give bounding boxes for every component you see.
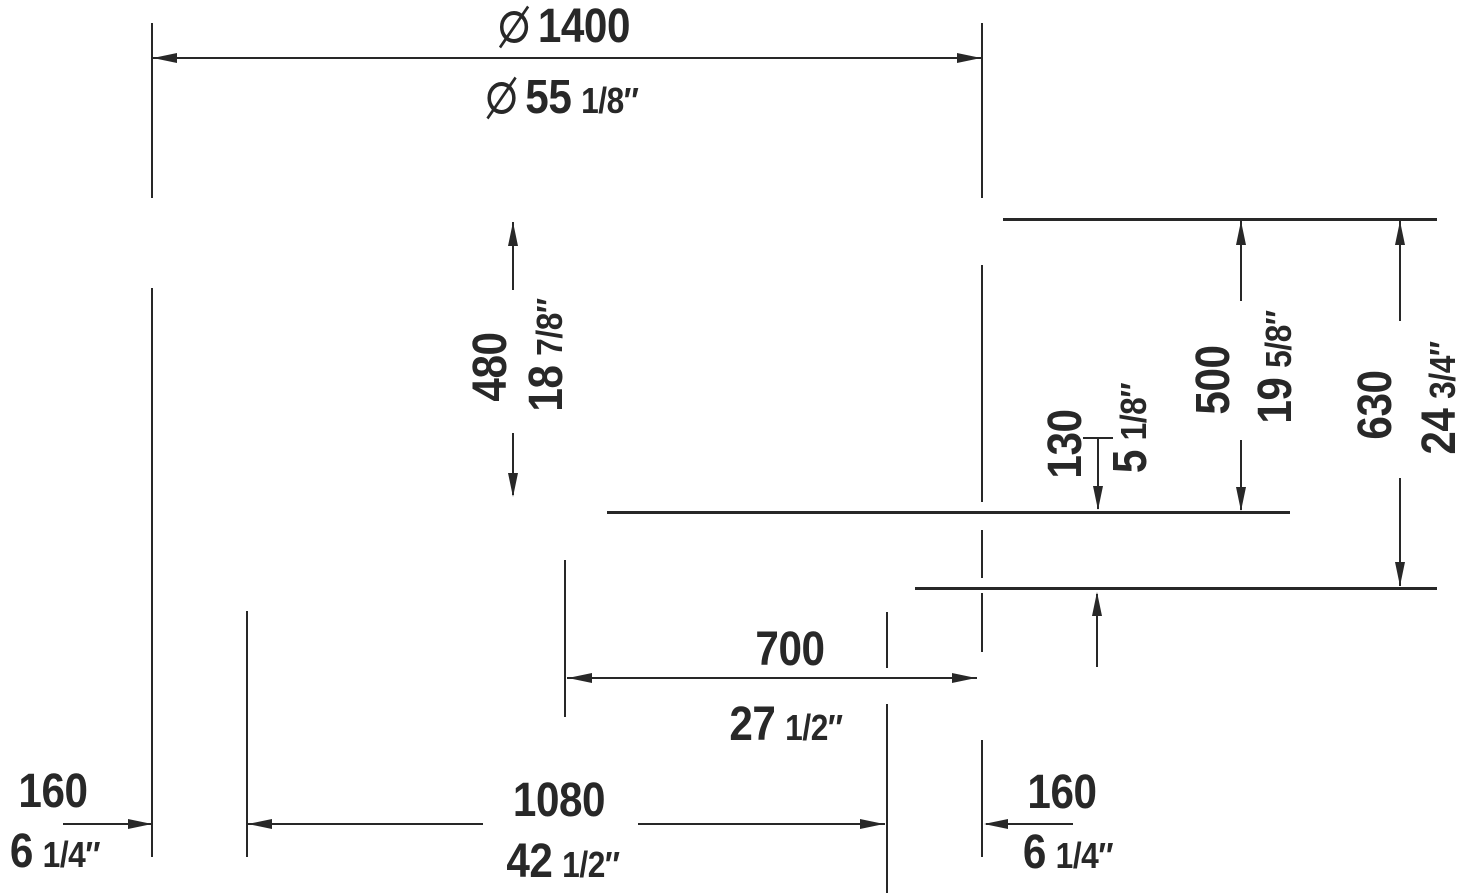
dim-fraction: 3/4″ — [1425, 341, 1461, 398]
dim-fraction: 1/8″ — [1116, 383, 1152, 440]
dim-line-foot-span-right — [638, 823, 885, 825]
dim-rim-metric: 500 — [1190, 345, 1238, 414]
dim-fraction: 1/4″ — [43, 837, 100, 873]
arrowhead-right — [957, 53, 981, 63]
arrowhead-left — [153, 53, 177, 63]
right-foot-line-upper — [886, 612, 888, 668]
arrowhead-down — [1236, 487, 1246, 511]
dim-foot-span-metric: 1080 — [513, 777, 605, 825]
dim-center-to-edge-imperial: 27 1/2″ — [729, 701, 842, 749]
diameter-icon — [500, 11, 528, 43]
diameter-icon — [487, 82, 515, 114]
arrowhead-left — [248, 819, 272, 829]
dim-line-diameter — [152, 57, 982, 59]
dim-clearance-metric: 130 — [1042, 409, 1090, 478]
arrowhead-up — [1236, 221, 1246, 245]
rim-level-line — [1003, 218, 1437, 221]
extension-line-right-2 — [981, 265, 983, 502]
arrowhead-down — [1093, 486, 1103, 510]
dim-fraction: 5/8″ — [1261, 310, 1297, 367]
dim-value: 42 — [506, 838, 552, 886]
dim-value: 130 — [1042, 409, 1090, 478]
dim-value: 160 — [1027, 769, 1096, 817]
dim-value: 5 — [1107, 450, 1155, 473]
dim-fraction: 1/8″ — [581, 83, 638, 119]
dim-line-foot-span-left — [247, 823, 483, 825]
dim-fraction: 1/4″ — [1056, 838, 1113, 874]
arrowhead-right — [860, 819, 884, 829]
dim-line-center-to-edge — [567, 677, 977, 679]
dim-value: 18 — [523, 366, 571, 412]
arrowhead-right — [952, 673, 976, 683]
dim-foot-span-imperial: 42 1/2″ — [506, 838, 619, 886]
dim-fraction: 1/2″ — [785, 710, 842, 746]
arrowhead-down — [508, 473, 518, 497]
dim-left-offset-metric: 160 — [18, 768, 87, 816]
dim-value: 500 — [1190, 345, 1238, 414]
dim-depth-metric: 480 — [467, 332, 515, 401]
dim-fraction: 7/8″ — [532, 298, 568, 355]
arrowhead-up — [1092, 592, 1102, 616]
extension-line-left-upper — [151, 23, 153, 198]
floor-level-line — [915, 587, 1437, 590]
dim-center-to-edge-metric: 700 — [755, 626, 824, 674]
dim-depth-imperial: 18 7/8″ — [523, 298, 571, 411]
dim-rim-imperial: 19 5/8″ — [1252, 310, 1300, 423]
dim-value: 19 — [1252, 378, 1300, 424]
arrowhead-up — [508, 222, 518, 246]
skirt-level-line — [607, 511, 1290, 514]
extension-line-right-3 — [981, 530, 983, 578]
dim-value: 27 — [729, 701, 775, 749]
dim-value: 1080 — [513, 777, 605, 825]
arrowhead-right — [128, 819, 152, 829]
dim-right-offset-imperial: 6 1/4″ — [1023, 829, 1113, 877]
dim-value: 700 — [755, 626, 824, 674]
extension-line-right-4 — [981, 593, 983, 652]
arrowhead-left — [568, 673, 592, 683]
technical-drawing-canvas: 1400 55 1/8″ 480 18 7/8″ 130 5 1/8″ 500 … — [0, 0, 1471, 894]
dim-diameter-imperial: 55 1/8″ — [487, 74, 638, 122]
dim-height-imperial: 24 3/4″ — [1416, 341, 1464, 454]
arrowhead-down — [1395, 562, 1405, 586]
extension-line-right-1 — [981, 23, 983, 198]
arrowhead-left — [984, 819, 1008, 829]
dim-value: 160 — [18, 768, 87, 816]
dim-value: 480 — [467, 332, 515, 401]
dim-clearance-imperial: 5 1/8″ — [1107, 383, 1155, 473]
dim-fraction: 1/2″ — [562, 847, 619, 883]
dim-right-offset-metric: 160 — [1027, 769, 1096, 817]
dim-height-metric: 630 — [1352, 370, 1400, 439]
dim-value: 630 — [1352, 370, 1400, 439]
dim-diameter-metric: 1400 — [500, 3, 630, 51]
dim-value: 6 — [1023, 829, 1046, 877]
right-foot-line-lower — [886, 704, 888, 893]
extension-line-left-lower — [151, 288, 153, 857]
dim-value: 55 — [525, 74, 571, 122]
dim-value: 24 — [1416, 409, 1464, 455]
dim-value: 6 — [10, 828, 33, 876]
center-line — [564, 560, 566, 717]
arrowhead-up — [1395, 221, 1405, 245]
dim-left-offset-imperial: 6 1/4″ — [10, 828, 100, 876]
extension-line-right-5 — [981, 740, 983, 857]
dim-value: 1400 — [538, 3, 630, 51]
